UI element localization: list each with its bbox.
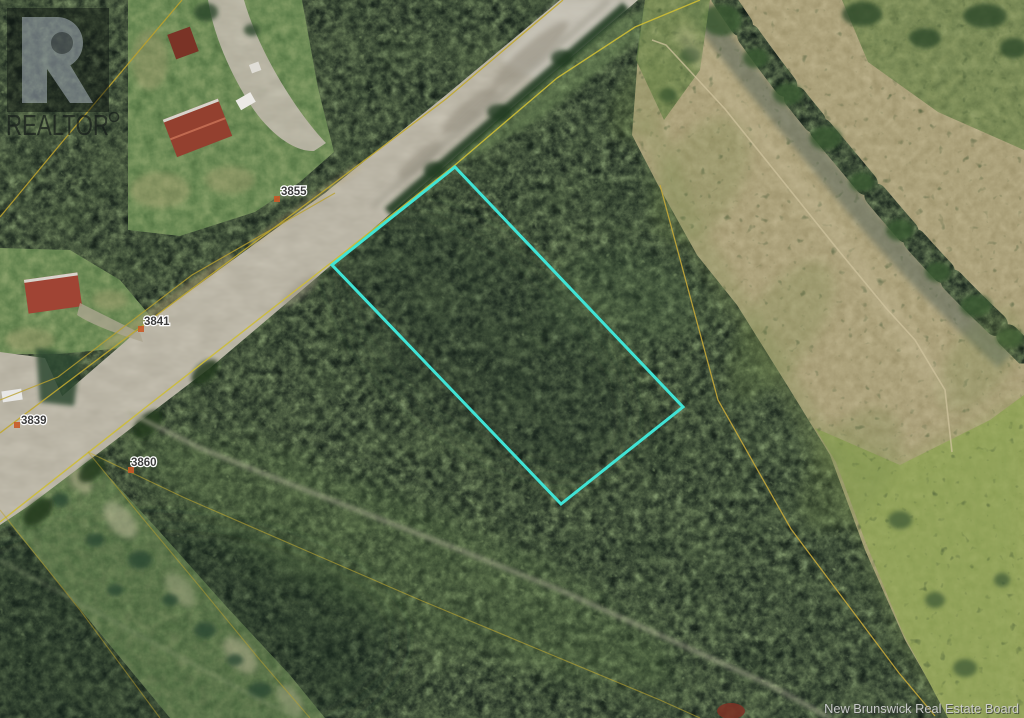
svg-text:REALTOR: REALTOR <box>6 110 109 142</box>
svg-text:3841: 3841 <box>144 316 170 328</box>
svg-text:3860: 3860 <box>131 457 157 469</box>
svg-text:3839: 3839 <box>21 415 47 427</box>
svg-text:New Brunswick Real Estate Boar: New Brunswick Real Estate Board <box>824 701 1019 716</box>
svg-text:3855: 3855 <box>281 186 307 198</box>
